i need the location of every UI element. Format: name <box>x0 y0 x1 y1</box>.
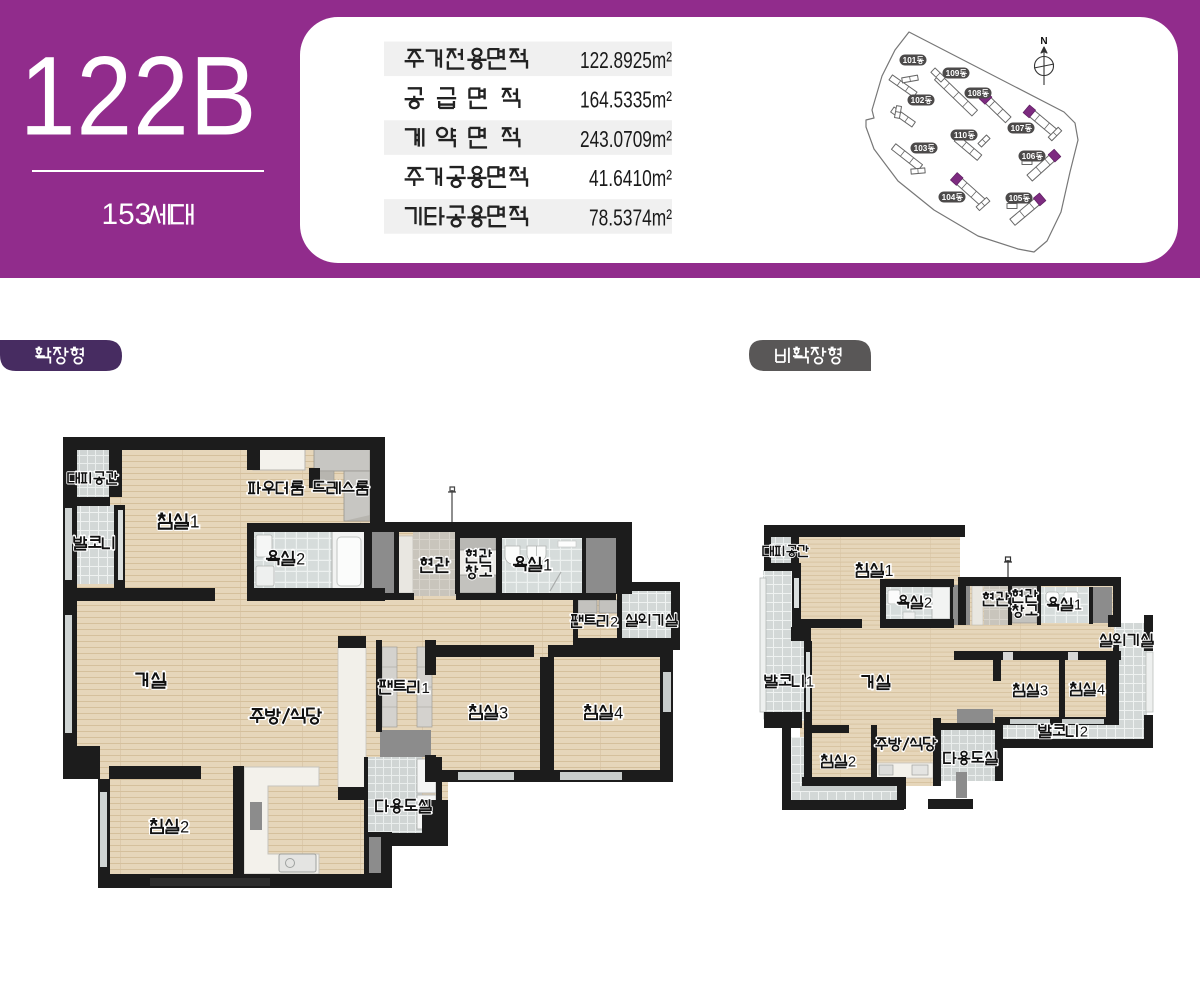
svg-text:1: 1 <box>543 556 552 574</box>
svg-text:103: 103 <box>914 144 928 153</box>
svg-text:122B: 122B <box>20 33 258 158</box>
svg-text:101: 101 <box>903 56 917 65</box>
svg-text:107: 107 <box>1011 124 1025 133</box>
svg-text:106: 106 <box>1022 152 1036 161</box>
svg-text:108: 108 <box>968 89 982 98</box>
svg-text:2: 2 <box>296 550 305 568</box>
svg-text:102: 102 <box>911 96 925 105</box>
svg-text:78.5374m²: 78.5374m² <box>589 205 672 231</box>
svg-text:N: N <box>1040 36 1047 47</box>
svg-text:4: 4 <box>1097 683 1105 699</box>
svg-text:1: 1 <box>1074 598 1082 614</box>
svg-text:3: 3 <box>1040 684 1048 700</box>
svg-text:243.0709m²: 243.0709m² <box>580 126 672 152</box>
svg-text:41.6410m²: 41.6410m² <box>589 165 672 191</box>
svg-text:2: 2 <box>610 613 618 629</box>
svg-text:104: 104 <box>942 193 956 202</box>
svg-text:2: 2 <box>848 755 856 771</box>
svg-text:110: 110 <box>954 131 968 140</box>
svg-text:105: 105 <box>1009 194 1023 203</box>
svg-text:2: 2 <box>180 818 189 836</box>
svg-text:1: 1 <box>806 675 814 691</box>
svg-text:2: 2 <box>1080 725 1088 741</box>
svg-text:1: 1 <box>422 680 430 697</box>
svg-text:2: 2 <box>924 596 932 612</box>
svg-text:164.5335m²: 164.5335m² <box>580 86 672 112</box>
svg-text:4: 4 <box>614 704 623 722</box>
svg-text:109: 109 <box>946 69 960 78</box>
svg-text:122.8925m²: 122.8925m² <box>580 47 672 73</box>
svg-text:3: 3 <box>499 704 508 722</box>
svg-text:1: 1 <box>190 512 200 532</box>
svg-text:153: 153 <box>102 198 152 231</box>
svg-text:1: 1 <box>885 563 894 580</box>
